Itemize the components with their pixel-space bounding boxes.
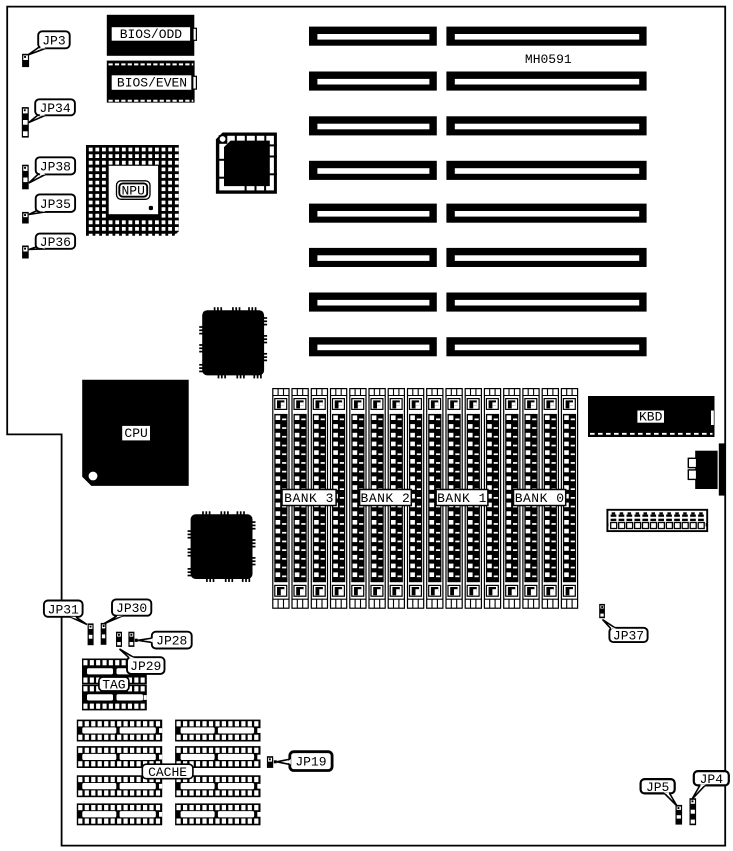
svg-text:CPU: CPU <box>124 426 147 441</box>
svg-text:JP34: JP34 <box>39 101 70 116</box>
svg-text:BANK 1: BANK 1 <box>437 491 487 506</box>
svg-text:JP28: JP28 <box>156 634 187 649</box>
svg-text:JP29: JP29 <box>130 659 161 674</box>
svg-text:JP38: JP38 <box>40 159 71 174</box>
svg-text:JP19: JP19 <box>295 755 326 770</box>
svg-text:MH0591: MH0591 <box>525 52 572 67</box>
svg-text:JP3: JP3 <box>42 33 65 48</box>
svg-text:BIOS/EVEN: BIOS/EVEN <box>117 75 187 90</box>
svg-text:JP36: JP36 <box>40 235 71 250</box>
svg-text:BANK 2: BANK 2 <box>361 491 411 506</box>
svg-text:BIOS/ODD: BIOS/ODD <box>120 27 183 42</box>
svg-text:JP5: JP5 <box>646 780 669 795</box>
svg-text:KBD: KBD <box>639 410 663 425</box>
svg-text:JP30: JP30 <box>116 601 147 616</box>
svg-text:JP4: JP4 <box>700 772 724 787</box>
svg-text:BANK 0: BANK 0 <box>515 491 565 506</box>
svg-text:TAG: TAG <box>102 678 125 693</box>
svg-text:NPU: NPU <box>121 184 144 199</box>
svg-text:JP35: JP35 <box>40 197 71 212</box>
svg-text:JP31: JP31 <box>48 602 79 617</box>
svg-text:JP37: JP37 <box>613 629 644 644</box>
svg-text:BANK 3: BANK 3 <box>284 491 334 506</box>
svg-text:CACHE: CACHE <box>148 765 187 780</box>
